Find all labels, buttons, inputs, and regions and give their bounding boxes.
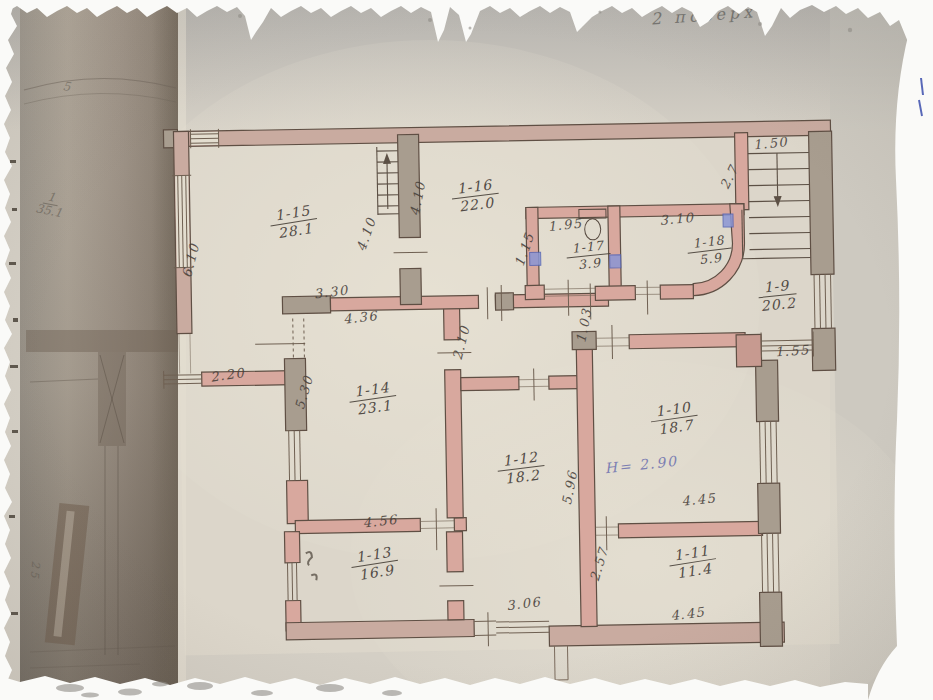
torn-edge-right [868,0,933,700]
torn-edge-top [0,0,933,46]
torn-edge-flecks [56,10,852,697]
floor-plan-photo: 2 поверх 1-1528.1 1-1622.0 1-173.9 1-185… [0,0,933,700]
torn-edge-left [0,0,17,700]
torn-photo-edges [0,0,933,700]
left-edge-debris [9,160,18,615]
torn-edge-bottom [0,676,868,700]
